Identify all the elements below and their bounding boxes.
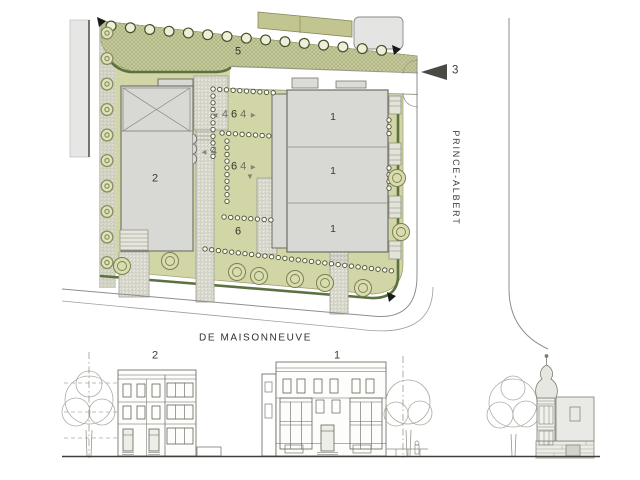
street-elevation: [62, 352, 600, 458]
drawing-canvas: 5 2 1 1 1 ◄ 4 6 4 ► ◄ 4 6 4 ► ▼ 6 3 PRIN…: [0, 0, 640, 480]
hydrant: [415, 441, 419, 454]
building2-elevation-label: 2: [152, 351, 158, 362]
arrow-left-icon: ◄: [211, 111, 219, 119]
arrow-right-icon: ►: [249, 111, 257, 119]
building1-unit-label: 1: [330, 112, 336, 123]
elevation-tree-3: [487, 376, 539, 456]
dim-value: 4: [240, 110, 246, 121]
building1-elevation-label: 1: [334, 351, 340, 362]
architectural-drawing: [0, 0, 640, 480]
dimension-left-mark: ◄ 4: [200, 147, 217, 158]
building1-unit-label: 1: [330, 166, 336, 177]
arrow-down-icon: ▼: [246, 173, 254, 181]
elevation-tree-2: [384, 356, 432, 458]
building-2-steps: [120, 230, 148, 250]
arrow-right-icon: ►: [249, 163, 257, 171]
building2-plan-label: 2: [152, 174, 158, 185]
building-2-elevation: [118, 370, 196, 456]
low-wall: [197, 447, 221, 456]
building1-unit-label: 1: [330, 224, 336, 235]
building-1-elevation: [262, 362, 386, 456]
street-name-prince-albert: PRINCE-ALBERT: [451, 130, 461, 225]
dimension-row-mid: 6 4 ►: [231, 162, 257, 173]
dim-value: 4: [211, 147, 217, 158]
elevation-tree-1: [62, 352, 115, 458]
arrow-left-icon: ◄: [200, 148, 208, 156]
street-name-de-maisonneuve: DE MAISONNEUVE: [199, 333, 312, 344]
zone6-label: 6: [235, 227, 241, 238]
building-2-footprint: [120, 79, 197, 251]
entrance-marker-label: 3: [452, 65, 458, 77]
site-plan: [62, 12, 548, 349]
reference-lines: [64, 383, 118, 438]
dim-value: 4: [240, 162, 246, 173]
dim-value: 6: [231, 162, 237, 173]
entrance-arrow-icon: [421, 64, 447, 80]
neighbour-building-north-olive: [258, 12, 352, 37]
dim-value: 6: [231, 110, 237, 121]
turret-building: [536, 355, 594, 459]
dim-value: 4: [222, 110, 228, 121]
neighbour-building-west: [70, 20, 89, 157]
zone5-label: 5: [235, 47, 241, 58]
dimension-row-top: ◄ 4 6 4 ►: [211, 110, 257, 121]
